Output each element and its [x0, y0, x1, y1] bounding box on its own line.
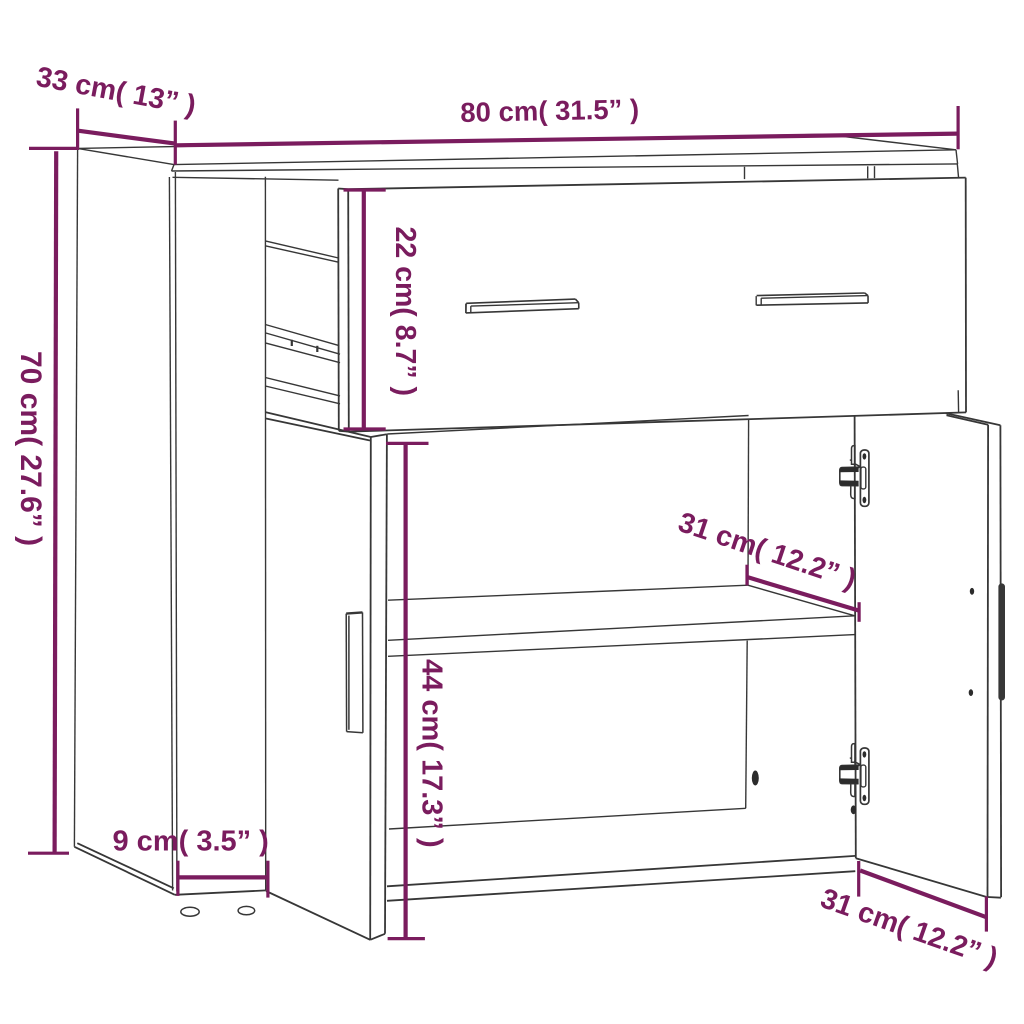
svg-text:70 cm( 27.6” ): 70 cm( 27.6” )	[14, 351, 47, 546]
svg-text:22 cm( 8.7” ): 22 cm( 8.7” )	[389, 227, 421, 397]
svg-text:9 cm( 3.5” ): 9 cm( 3.5” )	[113, 826, 269, 858]
svg-text:33 cm( 13” ): 33 cm( 13” )	[34, 61, 199, 122]
svg-text:44 cm( 17.3” ): 44 cm( 17.3” )	[416, 659, 448, 848]
svg-text:31 cm( 12.2” ): 31 cm( 12.2” )	[816, 882, 1001, 974]
svg-text:80 cm( 31.5” ): 80 cm( 31.5” )	[460, 93, 639, 128]
